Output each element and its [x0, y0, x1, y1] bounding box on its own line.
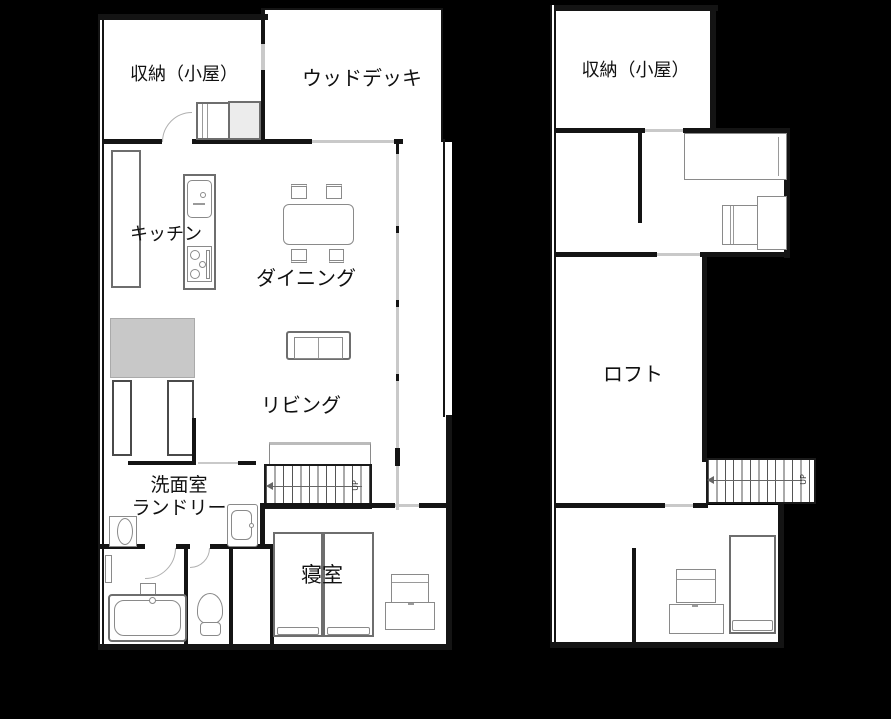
- bedroom-label: 寝室: [294, 563, 350, 588]
- bathtub-faucet: [149, 597, 156, 604]
- burner: [199, 261, 206, 268]
- kitchen-sink: [187, 180, 212, 218]
- wall: [778, 504, 784, 645]
- deck-edge: [441, 8, 443, 142]
- wall: [700, 252, 790, 257]
- kitchen-cabinet: [111, 150, 141, 288]
- wall: [443, 139, 445, 417]
- wall: [556, 128, 645, 133]
- wall: [710, 5, 716, 134]
- burner: [190, 269, 200, 279]
- tv-board: [269, 442, 371, 465]
- stairs-up-label: UP: [351, 480, 360, 491]
- closet-block: [110, 318, 195, 378]
- toilet-bowl: [197, 593, 223, 624]
- stairs-arrowhead: [266, 482, 273, 490]
- floor2-plan: UP 収納（小屋） ロフト: [470, 0, 891, 719]
- wall: [638, 133, 642, 223]
- dining-label: ダイニング: [251, 266, 361, 290]
- wall: [128, 461, 195, 465]
- wall: [260, 503, 265, 549]
- wall: [265, 139, 312, 144]
- wall: [396, 226, 399, 233]
- sofa-divider: [318, 338, 319, 358]
- dining-table: [283, 204, 354, 245]
- wall: [632, 548, 636, 642]
- wall: [100, 644, 452, 650]
- washroom-label-line2: ランドリー: [129, 497, 229, 520]
- floor1-plan: UP: [0, 0, 470, 719]
- faucet: [200, 192, 206, 198]
- kitchen-label: キッチン: [124, 224, 208, 246]
- desk-tick: [692, 605, 698, 607]
- dresser-tick: [408, 603, 414, 605]
- wood-deck-label: ウッドデッキ: [295, 66, 429, 90]
- wall: [98, 14, 104, 650]
- pillow-line: [778, 137, 779, 176]
- wall: [556, 503, 665, 508]
- closet-door: [112, 380, 132, 456]
- cabinet-line: [207, 104, 208, 138]
- sliding-door: [198, 462, 238, 464]
- wall: [238, 461, 256, 465]
- chest: [391, 574, 429, 603]
- wall: [396, 374, 399, 381]
- wall: [550, 5, 718, 11]
- chest: [676, 569, 716, 603]
- dining-chair: [329, 249, 344, 263]
- chest-line: [730, 206, 731, 244]
- stairs-up-label: UP: [799, 474, 808, 485]
- chest-line: [677, 579, 715, 580]
- window: [395, 504, 419, 507]
- wall: [260, 503, 395, 508]
- wall: [396, 144, 399, 154]
- wall: [395, 448, 400, 466]
- window: [665, 504, 693, 507]
- window: [645, 129, 683, 132]
- vanity-tap: [249, 523, 254, 528]
- stairs-arrow: [271, 486, 362, 487]
- chest-line: [733, 206, 734, 244]
- toilet-tank: [200, 622, 221, 636]
- deck-edge: [261, 8, 443, 10]
- pillow: [277, 627, 319, 635]
- chest-line: [392, 582, 428, 583]
- cabinet-line: [202, 104, 203, 138]
- chest: [722, 205, 758, 245]
- storage-room-label: 収納（小屋）: [568, 60, 703, 82]
- stairs-arrow: [712, 480, 802, 481]
- wall: [98, 14, 268, 20]
- washing-machine-drum: [117, 518, 133, 545]
- burner: [190, 250, 200, 260]
- closet-door: [167, 380, 194, 456]
- stove-grill: [206, 250, 210, 279]
- storage-cabinet: [228, 101, 261, 140]
- dining-chair: [326, 184, 342, 199]
- wall: [556, 252, 657, 257]
- faucet-handle: [193, 203, 205, 205]
- wall: [550, 642, 784, 648]
- wall: [550, 5, 556, 648]
- wall: [261, 8, 265, 142]
- pillow: [732, 620, 773, 631]
- bed: [684, 133, 787, 180]
- wall: [396, 300, 399, 307]
- storage-room-label: 収納（小屋）: [113, 64, 255, 86]
- window: [261, 44, 265, 70]
- wall: [702, 257, 707, 462]
- wall: [229, 549, 233, 645]
- living-label: リビング: [257, 393, 345, 417]
- dining-chair: [291, 184, 307, 199]
- wall: [103, 139, 162, 144]
- wall: [192, 418, 196, 465]
- loft-label: ロフト: [596, 362, 670, 386]
- shower-fixture: [105, 555, 112, 583]
- pillow: [327, 627, 370, 635]
- window: [312, 140, 394, 143]
- dining-chair: [291, 249, 307, 263]
- floor-plan-canvas: UP: [0, 0, 891, 719]
- bathtub-inner: [114, 600, 181, 636]
- washroom-label-line1: 洗面室: [142, 474, 216, 497]
- stairs-arrowhead: [707, 476, 714, 484]
- wall: [419, 503, 452, 508]
- bed: [757, 196, 787, 250]
- dresser-base: [385, 602, 435, 630]
- desk: [669, 604, 724, 634]
- wall: [446, 415, 452, 650]
- window: [657, 253, 702, 256]
